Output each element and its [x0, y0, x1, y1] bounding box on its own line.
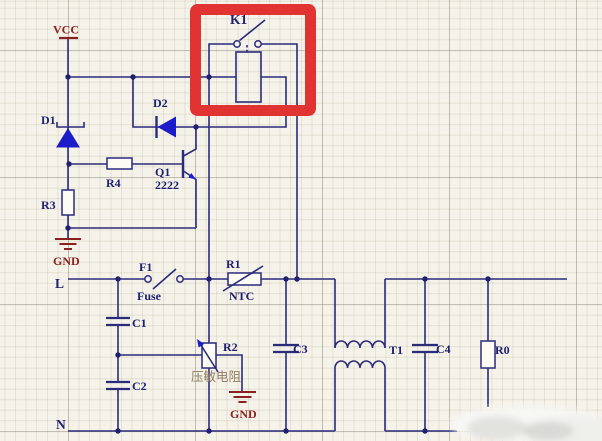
relay-highlight-box [196, 10, 311, 111]
fuse-label: Fuse [137, 289, 162, 303]
relay-k1 [234, 20, 265, 102]
r4-label: R4 [106, 176, 121, 190]
q1-part-label: 2222 [155, 178, 179, 192]
c4-label: C4 [436, 342, 451, 356]
junction-dot [294, 276, 299, 281]
ntc-label: NTC [229, 289, 254, 303]
c3-label: C3 [293, 342, 308, 356]
ground-bars-lower [229, 392, 256, 402]
junction-dot [115, 352, 120, 357]
flyback-diode-d2 [157, 116, 177, 138]
r0-label: R0 [495, 343, 510, 357]
c2-label: C2 [132, 379, 147, 393]
q1-emitter-arrow [188, 173, 196, 180]
watermark-shape [522, 422, 574, 440]
junction-dot [422, 276, 427, 281]
resistor-r4 [107, 158, 132, 169]
fuse-slash [153, 269, 176, 289]
d2-label: D2 [153, 96, 168, 110]
d2-triangle [158, 117, 177, 138]
junction-dots [65, 74, 490, 433]
zener-diode-d1 [56, 122, 84, 148]
d1-label: D1 [41, 113, 56, 127]
junction-dot [130, 74, 135, 79]
r3-label: R3 [41, 198, 56, 212]
neutral-terminal-label: N [56, 417, 66, 432]
capacitor-c2-plates [106, 382, 130, 389]
live-terminal-label: L [55, 276, 64, 291]
q1-collector-wire [184, 127, 197, 156]
resistor-r3 [62, 190, 74, 215]
wires [68, 38, 567, 431]
r1-label: R1 [226, 257, 241, 271]
schematic-canvas: VCC D1 D2 K1 R4 Q1 2222 R3 GND F1 Fuse R… [0, 0, 602, 441]
labels: VCC D1 D2 K1 R4 Q1 2222 R3 GND F1 Fuse R… [41, 12, 510, 432]
f1-label: F1 [139, 260, 152, 274]
junction-dot [115, 276, 120, 281]
junction-dot [283, 276, 288, 281]
q1-emitter-wire [184, 171, 197, 228]
ground-symbol-upper [55, 239, 81, 249]
gnd-upper-label: GND [53, 254, 80, 268]
d1-cathode-bar [57, 122, 84, 127]
relay-contact-wires [209, 44, 297, 279]
d1-triangle [56, 128, 80, 148]
vcc-label: VCC [53, 23, 79, 37]
junction-dot [206, 276, 211, 281]
ground-symbol-lower [229, 392, 256, 402]
junction-dot [66, 161, 71, 166]
relay-contact-right [255, 41, 261, 47]
junction-dot [206, 74, 211, 79]
relay-coil-body [236, 52, 261, 102]
q1-label: Q1 [155, 165, 170, 179]
t1-top-winding-legs [335, 279, 385, 348]
t1-top-winding-coil [335, 341, 385, 348]
t1-bottom-winding-legs [335, 368, 385, 431]
gnd-lower-label: GND [230, 407, 257, 421]
capacitor-c1-plates [106, 318, 130, 325]
capacitor-c4-plates [412, 345, 438, 352]
junction-dot [65, 225, 70, 230]
junction-dot [422, 428, 427, 433]
r2-label: R2 [223, 340, 238, 354]
t1-label: T1 [389, 343, 403, 357]
ground-bars-upper [55, 239, 81, 249]
varistor-name-label: 压敏电阻 [191, 369, 242, 384]
watermark-shape [467, 416, 527, 440]
fuse-terminal-left [145, 276, 151, 282]
schematic-svg: VCC D1 D2 K1 R4 Q1 2222 R3 GND F1 Fuse R… [0, 0, 602, 441]
fuse-terminal-right [177, 276, 183, 282]
resistor-r0 [481, 341, 495, 368]
relay-contact-left [234, 41, 240, 47]
junction-dot [283, 428, 288, 433]
junction-dot [193, 124, 198, 129]
junction-dot [65, 74, 70, 79]
t1-bottom-winding-coil [335, 361, 385, 368]
watermark-blur [450, 406, 602, 441]
r1-body [228, 273, 261, 285]
junction-dot [485, 276, 490, 281]
junction-dot [115, 428, 120, 433]
c1-label: C1 [132, 316, 147, 330]
junction-dot [206, 428, 211, 433]
